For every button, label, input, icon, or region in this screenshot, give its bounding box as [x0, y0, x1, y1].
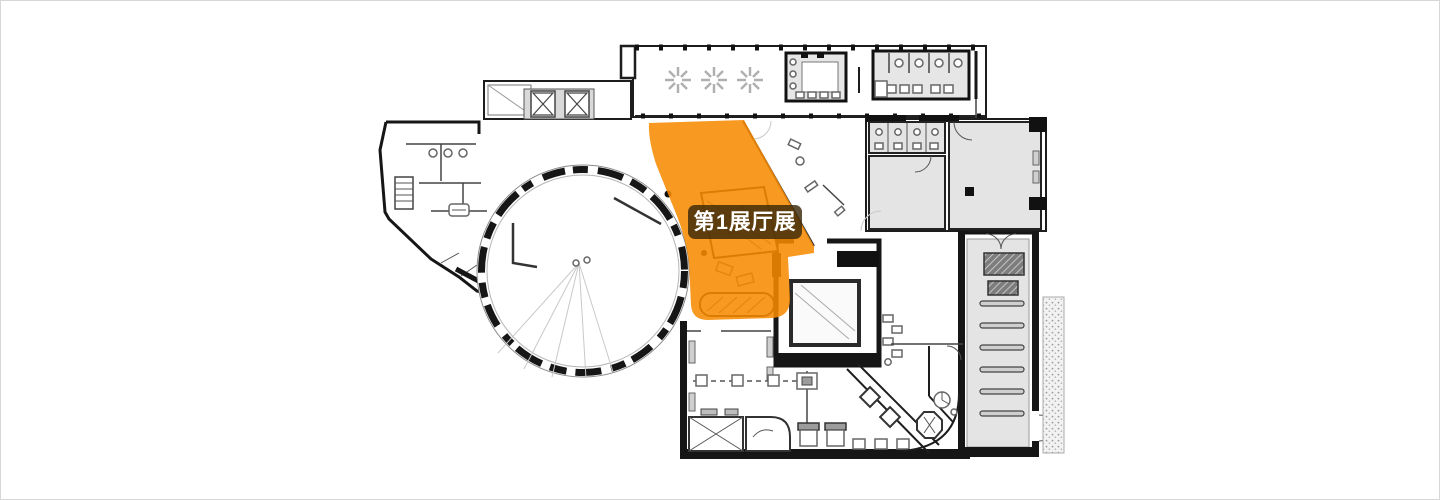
- crate-table: [689, 409, 743, 451]
- octagon-display: [917, 392, 957, 438]
- round-hall: [477, 165, 689, 378]
- hall-label-text: 第1展厅展: [694, 209, 797, 234]
- elevator-lobby: [484, 81, 631, 119]
- display-strip: [883, 315, 902, 365]
- crate-icon: [988, 281, 1018, 295]
- stairs-icon: [395, 177, 413, 209]
- gravel-strip: [1043, 297, 1064, 453]
- top-wing: [621, 46, 986, 119]
- info-counter: [746, 417, 790, 451]
- exhibition-hall-1-label: 第1展厅展: [688, 205, 802, 239]
- storage-room-left: [869, 156, 945, 229]
- mid-right-block: [866, 115, 1047, 231]
- crate-icon: [984, 253, 1024, 275]
- right-wing: [958, 231, 1064, 457]
- service-room-a: [786, 53, 846, 101]
- restroom-mid: [869, 122, 945, 153]
- floor-plan-svg: 第1展厅展: [1, 1, 1440, 500]
- floor-plan-page: 第1展厅展: [0, 0, 1440, 500]
- restroom-top: [873, 51, 969, 99]
